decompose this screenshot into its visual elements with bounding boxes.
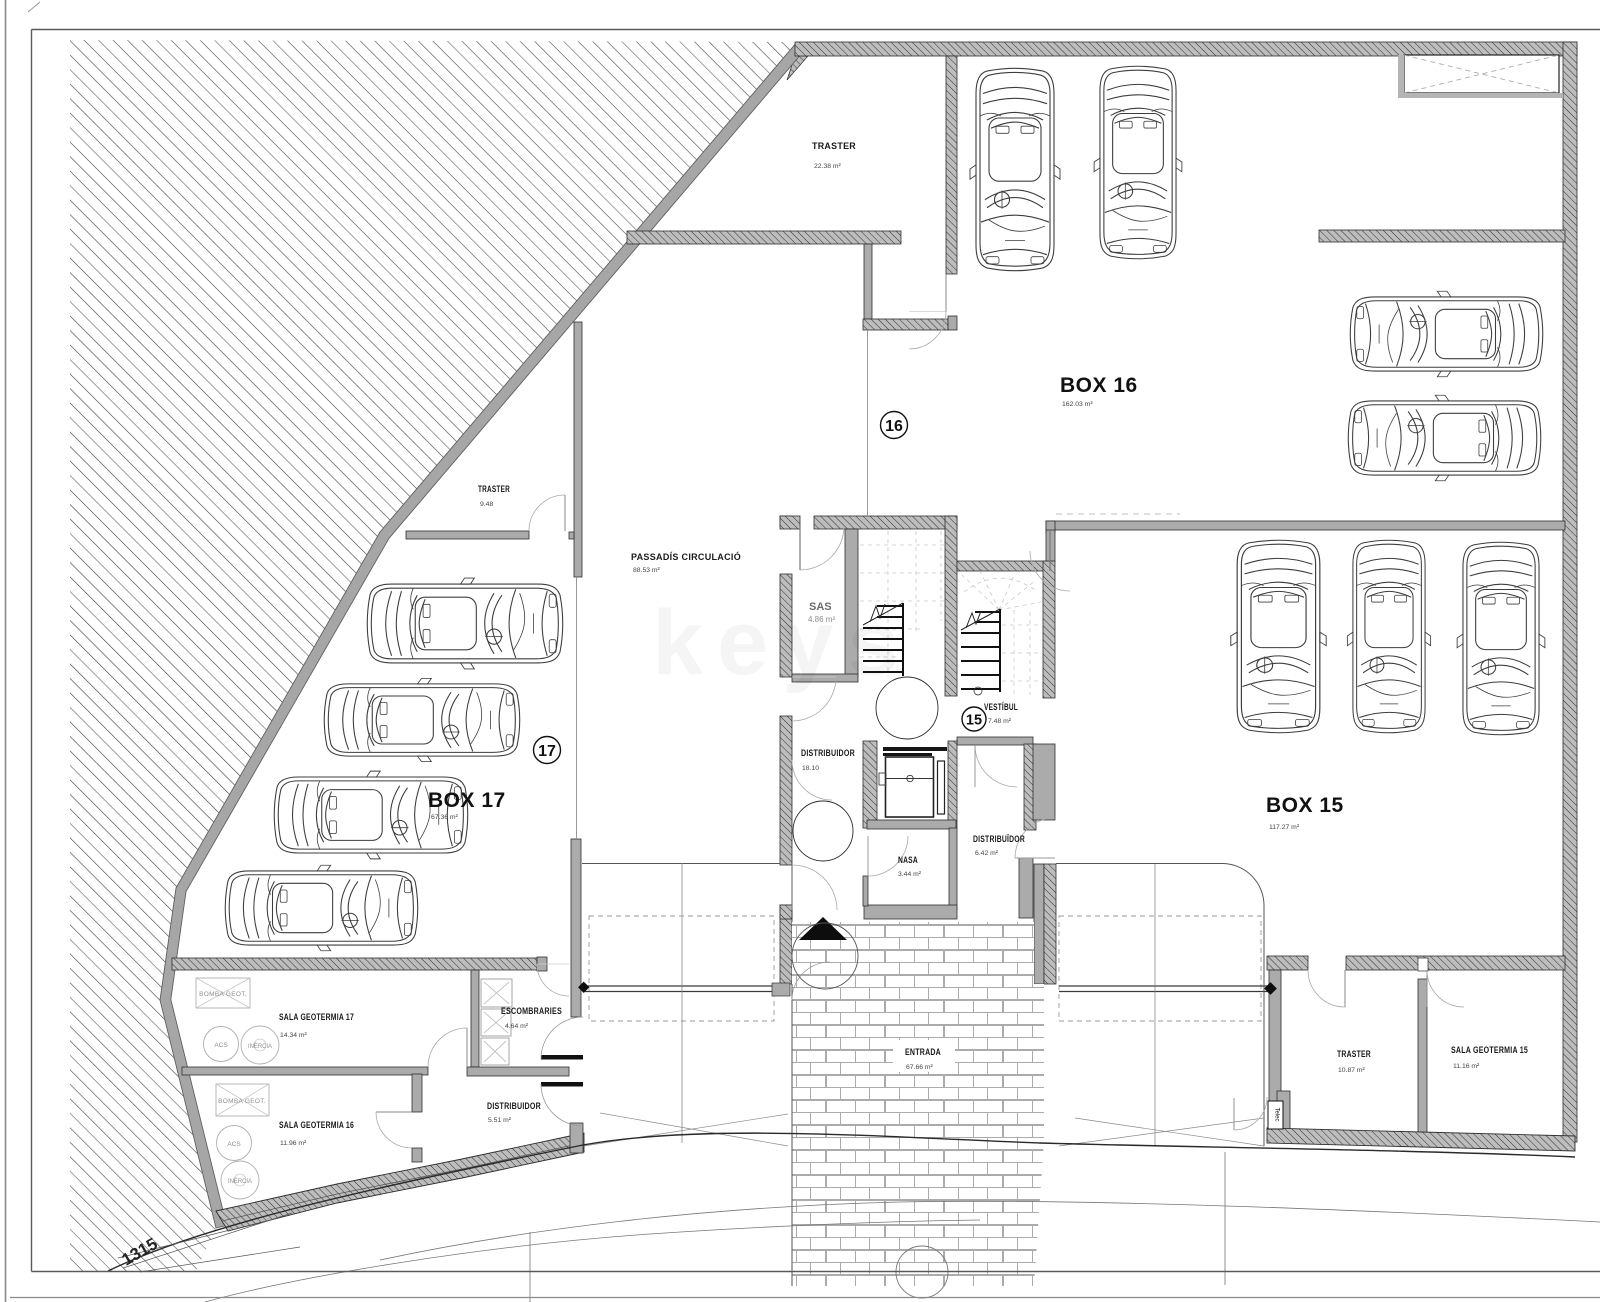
svg-text:88.53 m²: 88.53 m² [633, 567, 661, 574]
svg-text:TRASTER: TRASTER [1337, 1049, 1371, 1059]
svg-text:DISTRIBUIDOR: DISTRIBUIDOR [487, 1101, 541, 1111]
svg-text:ENTRADA: ENTRADA [905, 1047, 941, 1057]
svg-text:17: 17 [538, 743, 556, 760]
svg-text:6.42 m²: 6.42 m² [975, 850, 999, 857]
svg-text:7.48 m²: 7.48 m² [988, 718, 1012, 725]
svg-text:117.27 m²: 117.27 m² [1269, 824, 1300, 831]
svg-text:Telec: Telec [1274, 1107, 1280, 1121]
svg-text:4.64 m²: 4.64 m² [505, 1023, 529, 1030]
svg-text:TRASTER: TRASTER [478, 484, 510, 494]
svg-text:SAS: SAS [809, 601, 832, 613]
svg-text:11.96 m²: 11.96 m² [280, 1140, 307, 1147]
svg-text:keys: keys [652, 592, 913, 694]
svg-text:ACS: ACS [214, 1042, 228, 1049]
svg-text:3.44 m²: 3.44 m² [898, 871, 922, 878]
svg-text:INÈRCIA: INÈRCIA [248, 1041, 273, 1050]
svg-text:5.51 m²: 5.51 m² [488, 1117, 512, 1124]
svg-text:PASSADÍS CIRCULACIÓ: PASSADÍS CIRCULACIÓ [631, 551, 741, 562]
svg-text:BOX 16: BOX 16 [1060, 374, 1138, 397]
svg-text:10.87 m²: 10.87 m² [1338, 1067, 1366, 1074]
svg-text:BOMBA GEOT.: BOMBA GEOT. [199, 991, 247, 998]
svg-text:9.48: 9.48 [480, 501, 493, 508]
svg-text:SALA GEOTERMIA 17: SALA GEOTERMIA 17 [279, 1012, 354, 1022]
svg-text:SALA GEOTERMIA 15: SALA GEOTERMIA 15 [1451, 1045, 1528, 1055]
svg-text:BOX 17: BOX 17 [428, 789, 506, 812]
svg-text:TRASTER: TRASTER [812, 141, 856, 151]
svg-text:ACS: ACS [227, 1141, 241, 1148]
svg-text:BOX 15: BOX 15 [1266, 794, 1344, 817]
svg-text:SALA GEOTERMIA 16: SALA GEOTERMIA 16 [279, 1120, 354, 1130]
svg-text:VESTÍBUL: VESTÍBUL [984, 702, 1018, 712]
svg-text:16: 16 [885, 418, 903, 435]
svg-text:18.10: 18.10 [802, 765, 819, 772]
svg-text:162.03 m²: 162.03 m² [1062, 401, 1093, 408]
svg-text:NASA: NASA [898, 855, 918, 865]
svg-text:INÈRCIA: INÈRCIA [228, 1176, 253, 1185]
svg-text:ESCOMBRARIES: ESCOMBRARIES [501, 1006, 562, 1016]
svg-text:67.66 m²: 67.66 m² [906, 1064, 934, 1071]
svg-text:22.38 m²: 22.38 m² [814, 163, 842, 170]
svg-text:11.16 m²: 11.16 m² [1453, 1063, 1480, 1070]
svg-text:DISTRIBUÏDOR: DISTRIBUÏDOR [973, 834, 1025, 844]
svg-text:DISTRIBUIDOR: DISTRIBUIDOR [801, 748, 855, 758]
svg-text:BOMBA GEOT.: BOMBA GEOT. [218, 1098, 266, 1105]
svg-text:14.34 m²: 14.34 m² [280, 1032, 308, 1039]
svg-text:67.36 m²: 67.36 m² [431, 814, 459, 821]
svg-text:15: 15 [966, 713, 982, 729]
svg-text:4.86 m²: 4.86 m² [808, 615, 835, 624]
